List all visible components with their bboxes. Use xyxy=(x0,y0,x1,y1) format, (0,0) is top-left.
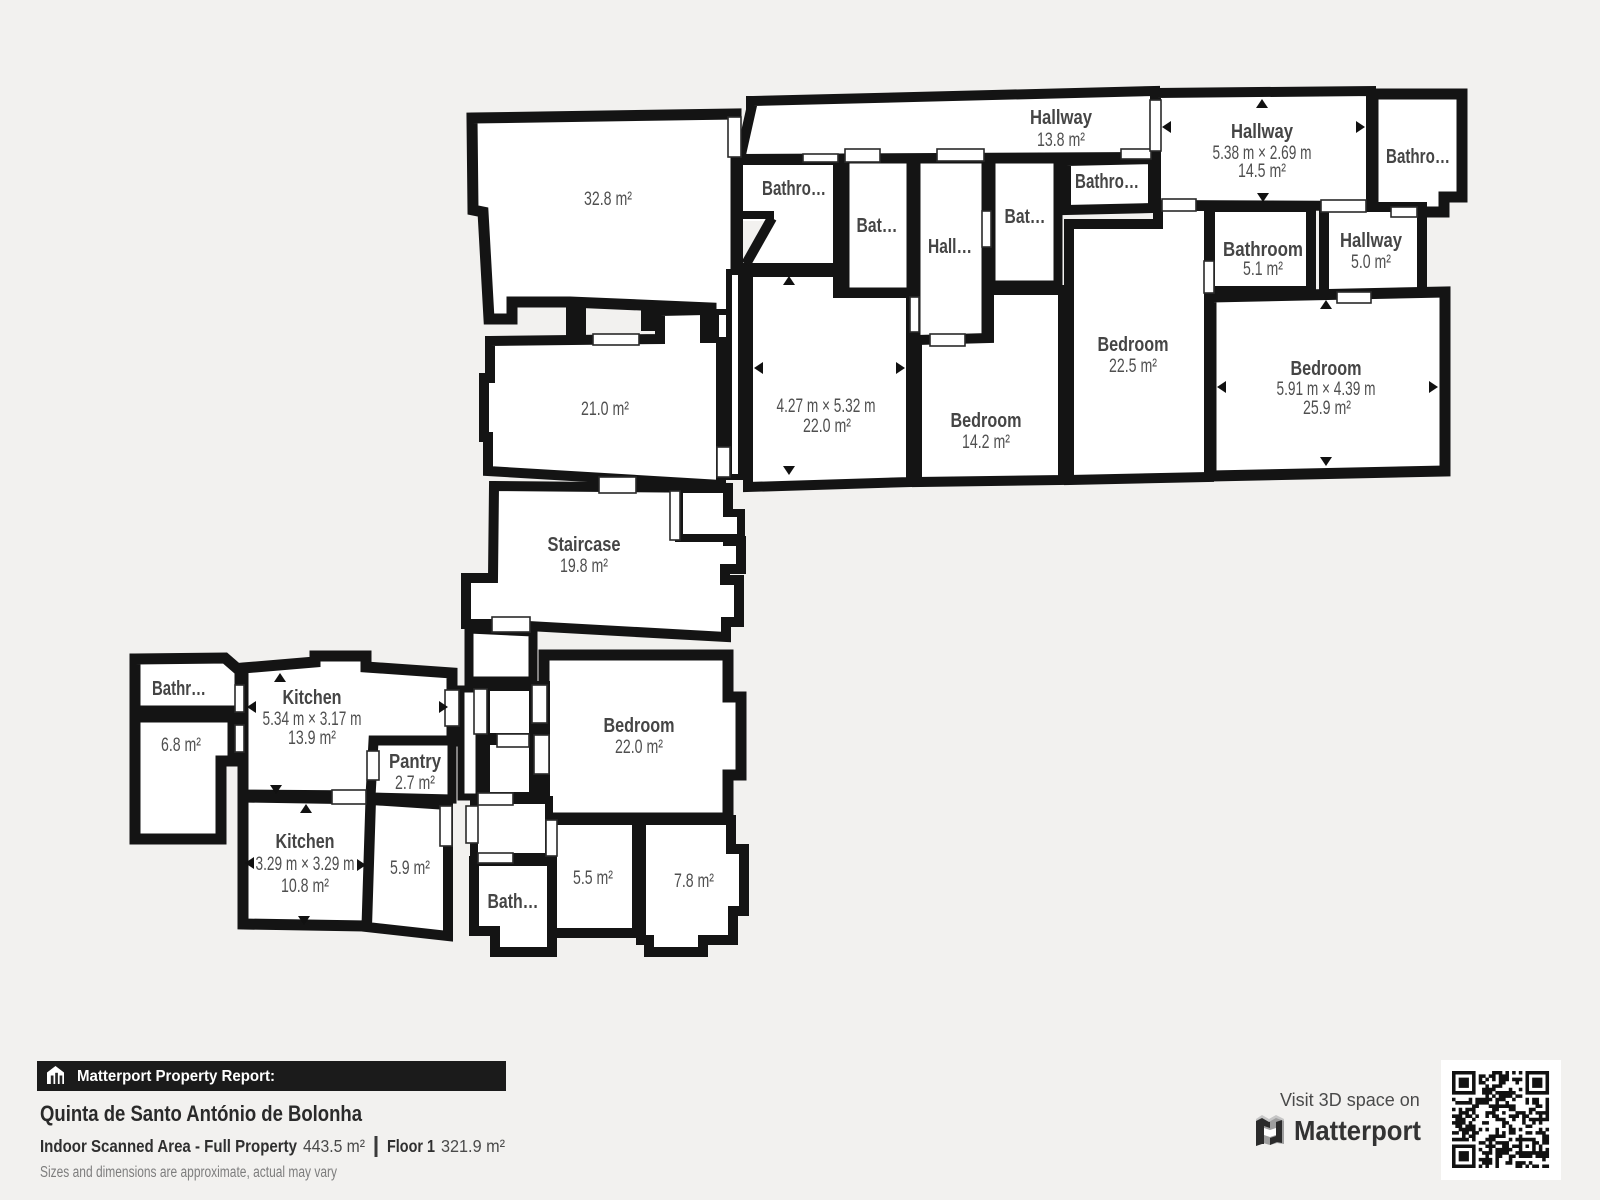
svg-text:3.29 m × 3.29 m: 3.29 m × 3.29 m xyxy=(256,854,355,875)
svg-text:14.5 m²: 14.5 m² xyxy=(1238,161,1286,182)
svg-text:Bathro…: Bathro… xyxy=(1386,146,1450,168)
svg-text:7.8 m²: 7.8 m² xyxy=(674,871,714,892)
svg-text:443.5 m²: 443.5 m² xyxy=(303,1136,365,1156)
svg-text:2.7 m²: 2.7 m² xyxy=(395,773,435,794)
svg-text:Bath…: Bath… xyxy=(488,891,539,913)
svg-text:Visit 3D space on: Visit 3D space on xyxy=(1280,1090,1420,1110)
svg-text:Sizes and dimensions are appro: Sizes and dimensions are approximate, ac… xyxy=(40,1164,337,1181)
svg-text:5.1 m²: 5.1 m² xyxy=(1243,259,1283,280)
svg-text:Bat…: Bat… xyxy=(1005,206,1046,228)
svg-text:Hallway: Hallway xyxy=(1340,230,1403,252)
svg-text:6.8 m²: 6.8 m² xyxy=(161,735,201,756)
svg-text:Bathroom: Bathroom xyxy=(1223,239,1303,261)
svg-text:Bedroom: Bedroom xyxy=(951,410,1022,432)
svg-text:19.8 m²: 19.8 m² xyxy=(560,556,608,577)
svg-text:Bedroom: Bedroom xyxy=(1291,358,1362,380)
svg-text:Bathr…: Bathr… xyxy=(152,678,206,700)
svg-text:Kitchen: Kitchen xyxy=(276,831,335,853)
svg-text:5.0 m²: 5.0 m² xyxy=(1351,252,1391,273)
svg-text:Matterport: Matterport xyxy=(1294,1115,1421,1146)
svg-text:Bathro…: Bathro… xyxy=(1075,171,1139,193)
svg-text:Staircase: Staircase xyxy=(548,534,621,556)
svg-text:Pantry: Pantry xyxy=(389,751,442,773)
svg-text:13.9 m²: 13.9 m² xyxy=(288,728,336,749)
svg-text:5.9 m²: 5.9 m² xyxy=(390,858,430,879)
svg-text:Hallway: Hallway xyxy=(1231,121,1294,143)
svg-text:22.0 m²: 22.0 m² xyxy=(803,416,851,437)
svg-text:22.5 m²: 22.5 m² xyxy=(1109,356,1157,377)
svg-text:Hall…: Hall… xyxy=(928,236,972,258)
svg-text:Bedroom: Bedroom xyxy=(604,715,675,737)
svg-text:Bathro…: Bathro… xyxy=(762,178,826,200)
svg-text:Indoor Scanned Area - Full Pro: Indoor Scanned Area - Full Property xyxy=(40,1136,297,1156)
svg-text:4.27 m × 5.32 m: 4.27 m × 5.32 m xyxy=(777,396,876,417)
svg-text:5.91 m × 4.39 m: 5.91 m × 4.39 m xyxy=(1277,379,1376,400)
svg-text:32.8 m²: 32.8 m² xyxy=(584,189,632,210)
svg-text:Quinta de Santo António de Bol: Quinta de Santo António de Bolonha xyxy=(40,1101,363,1126)
svg-text:22.0 m²: 22.0 m² xyxy=(615,737,663,758)
svg-text:Hallway: Hallway xyxy=(1030,107,1093,129)
svg-text:13.8 m²: 13.8 m² xyxy=(1037,130,1085,151)
svg-text:Kitchen: Kitchen xyxy=(283,687,342,709)
svg-text:14.2 m²: 14.2 m² xyxy=(962,432,1010,453)
svg-text:5.34 m × 3.17 m: 5.34 m × 3.17 m xyxy=(263,709,362,730)
svg-text:Floor 1: Floor 1 xyxy=(387,1136,435,1156)
svg-text:21.0 m²: 21.0 m² xyxy=(581,399,629,420)
svg-text:Bedroom: Bedroom xyxy=(1098,334,1169,356)
svg-text:Matterport Property Report:: Matterport Property Report: xyxy=(77,1068,275,1085)
svg-text:25.9 m²: 25.9 m² xyxy=(1303,398,1351,419)
svg-text:321.9 m²: 321.9 m² xyxy=(441,1136,505,1156)
svg-text:5.5 m²: 5.5 m² xyxy=(573,868,613,889)
svg-text:Bat…: Bat… xyxy=(857,215,898,237)
svg-text:10.8 m²: 10.8 m² xyxy=(281,876,329,897)
